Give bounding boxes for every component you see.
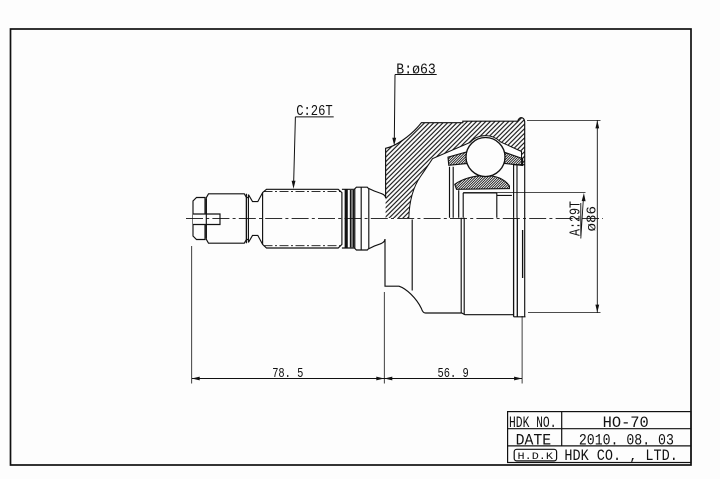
svg-text:HO-70: HO-70 <box>603 414 649 432</box>
svg-text:56. 9: 56. 9 <box>438 366 469 382</box>
svg-text:C:26T: C:26T <box>296 103 333 120</box>
svg-text:78. 5: 78. 5 <box>272 366 303 382</box>
svg-text:A:29T: A:29T <box>568 201 584 236</box>
svg-text:DATE: DATE <box>516 431 552 449</box>
svg-text:HDK NO.: HDK NO. <box>509 414 557 432</box>
svg-text:HDK CO. , LTD.: HDK CO. , LTD. <box>564 447 677 465</box>
svg-text:B:ø63: B:ø63 <box>396 62 436 79</box>
svg-text:ø86: ø86 <box>585 206 601 232</box>
svg-text:H.D.K: H.D.K <box>518 451 554 463</box>
